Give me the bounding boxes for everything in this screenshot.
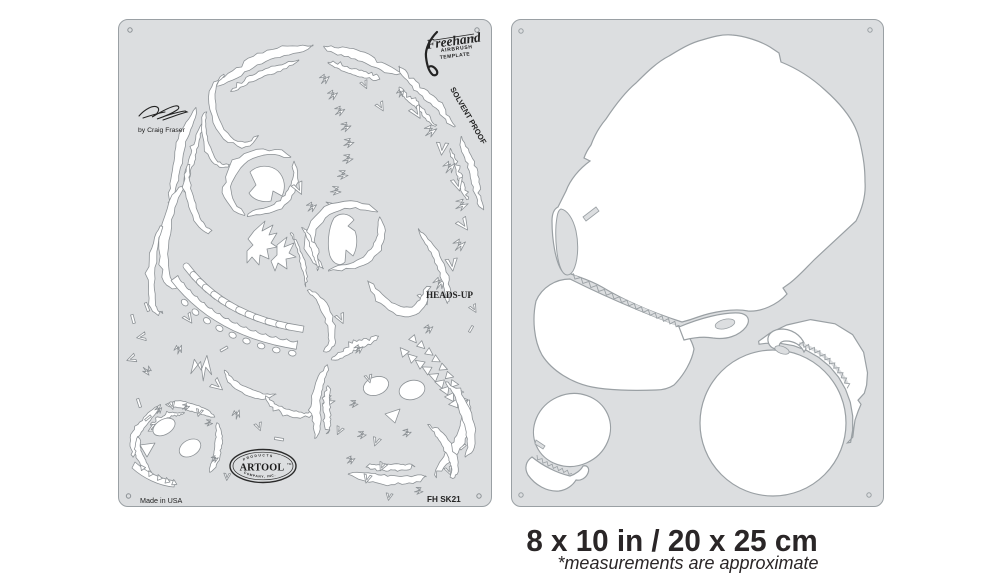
svg-text:by Craig Fraser: by Craig Fraser [138,127,186,134]
svg-text:HEADS-UP: HEADS-UP [426,290,473,300]
svg-text:TM: TM [287,462,292,466]
svg-text:SOLVENT PROOF: SOLVENT PROOF [448,86,488,147]
svg-text:FH SK21: FH SK21 [427,495,461,504]
svg-text:Made in USA: Made in USA [140,496,183,505]
